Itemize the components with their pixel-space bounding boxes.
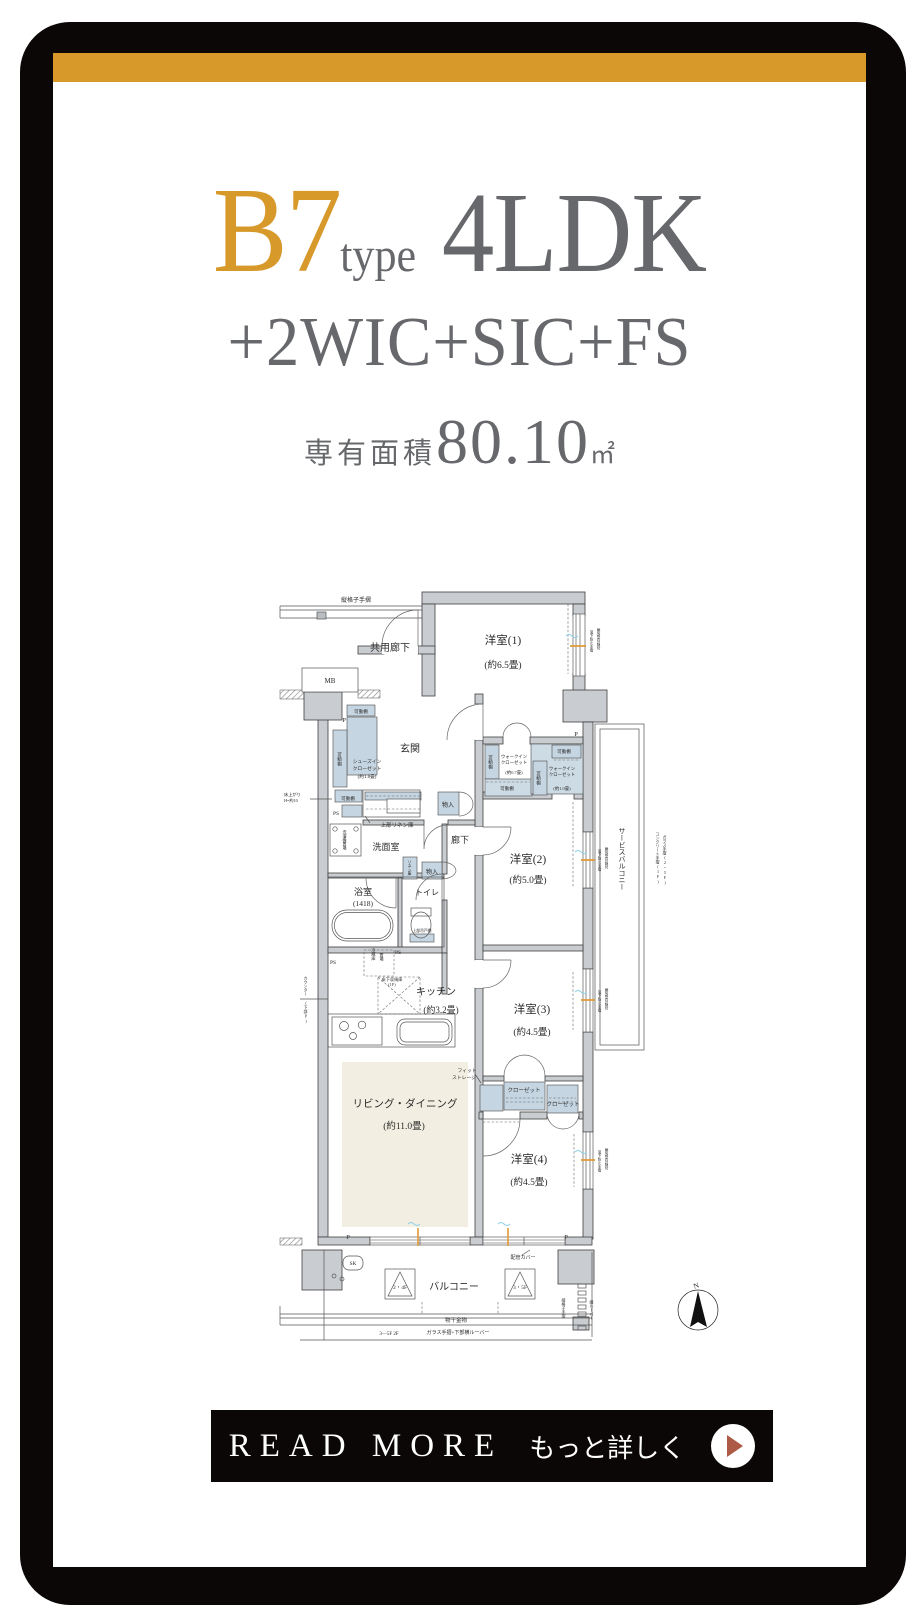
area-label: 専有面積 bbox=[304, 438, 436, 470]
label-genkan: 玄関 bbox=[400, 742, 420, 755]
plan-label: 配管カバー bbox=[510, 1254, 535, 1261]
label-kitchen-size: (約3.2畳) bbox=[423, 1004, 458, 1015]
compass-n-label: N bbox=[692, 1280, 700, 1290]
plan-area: 専有面積80.10㎡ bbox=[53, 405, 866, 479]
label-common-corridor: 共用廊下 bbox=[370, 641, 410, 654]
plan-label: コンクリート手摺(1F) bbox=[656, 832, 661, 884]
plan-label: 落下防止手摺 bbox=[597, 1149, 602, 1172]
label-kitchen: キッチン bbox=[416, 986, 456, 998]
plan-label: P bbox=[346, 1234, 350, 1241]
plan-label: クローゼット bbox=[353, 765, 382, 772]
plan-label: PS bbox=[330, 960, 336, 966]
plan-label: 開放型目隠付 bbox=[604, 1147, 609, 1170]
plan-label: P bbox=[574, 731, 578, 738]
living-floor-area bbox=[342, 1062, 468, 1227]
label-bath: 浴室 bbox=[354, 886, 372, 897]
plan-label: 落下防止手摺 bbox=[597, 989, 602, 1012]
plan-label: 可動棚 bbox=[354, 708, 368, 715]
right-arrow-icon bbox=[727, 1435, 743, 1457]
plan-label: クローゼット bbox=[507, 1086, 540, 1094]
plan-label: 上部吊戸棚 bbox=[413, 928, 432, 933]
floorplan-diagram: 縦格子手摺共用廊下MB洋室(1)(約6.5畳)玄関可動棚可動棚シューズインクロー… bbox=[270, 562, 750, 1352]
plan-label: 縦ルーバー bbox=[590, 1299, 595, 1320]
plan-code: B7 bbox=[213, 163, 340, 298]
plan-label: (下部P) bbox=[304, 1001, 309, 1024]
label-bedroom4-size: (約4.5畳) bbox=[510, 1176, 547, 1188]
label-balcony: バルコニー bbox=[429, 1281, 479, 1293]
read-more-detail-label: もっと詳しく bbox=[529, 1428, 685, 1465]
label-service-balcony: サービスバルコニー bbox=[618, 828, 626, 891]
plan-label: P bbox=[564, 1234, 568, 1241]
plan-label: 物干金物 bbox=[445, 1316, 468, 1324]
plan-label: ガラス手摺+下部横ルーバー bbox=[427, 1329, 490, 1336]
plan-label: SK bbox=[349, 1261, 356, 1267]
plan-options: +2WIC+SIC+FS bbox=[73, 303, 845, 383]
plan-label: 2・4F bbox=[393, 1285, 407, 1291]
plan-label: PS bbox=[333, 811, 339, 817]
label-living-size: (約11.0畳) bbox=[383, 1120, 425, 1132]
plan-label: ストレージ bbox=[452, 1075, 476, 1081]
plan-label: (約0.7畳) bbox=[505, 769, 523, 776]
plan-label: クローゼット bbox=[501, 759, 527, 766]
label-bedroom3-size: (約4.5畳) bbox=[513, 1026, 550, 1038]
plan-label: 可動棚 bbox=[500, 785, 514, 792]
plan-label: 落下防止手摺 bbox=[597, 848, 602, 871]
plan-label: 可動棚 bbox=[337, 752, 343, 767]
plan-label: ウォークイン bbox=[501, 753, 528, 760]
arrow-circle-icon[interactable] bbox=[711, 1424, 755, 1468]
plan-label: 開放型目隠付 bbox=[604, 987, 609, 1010]
plan-label: H=約10 bbox=[284, 797, 298, 804]
plan-label: カウンター bbox=[304, 976, 309, 996]
plan-label: 可動棚 bbox=[536, 771, 542, 786]
plan-label: 物入 bbox=[442, 801, 454, 809]
plan-label: 物入 bbox=[426, 868, 438, 876]
plan-label: 可動棚 bbox=[341, 795, 355, 802]
plan-label: (約1.0畳) bbox=[553, 785, 571, 792]
plan-label: フィット bbox=[457, 1068, 476, 1074]
plan-code-suffix: type bbox=[340, 229, 416, 282]
label-bedroom1-size: (約6.5畳) bbox=[484, 659, 521, 671]
read-more-button[interactable]: READ MORE もっと詳しく bbox=[211, 1410, 773, 1482]
area-unit: ㎡ bbox=[590, 442, 615, 469]
plan-label: P bbox=[342, 717, 346, 724]
area-value: 80.10 bbox=[436, 406, 590, 477]
plan-label: PS bbox=[395, 950, 401, 956]
plan-label: 床上がり bbox=[284, 791, 301, 798]
card-inner: B7type4LDK +2WIC+SIC+FS 専有面積80.10㎡ bbox=[53, 53, 866, 1567]
read-more-label: READ MORE bbox=[229, 1428, 503, 1465]
accent-bar bbox=[53, 53, 866, 82]
label-bedroom3: 洋室(3) bbox=[514, 1002, 551, 1016]
plan-label: (1F) bbox=[388, 982, 396, 987]
plan-label: シューズイン bbox=[353, 758, 382, 765]
plan-label: 洗濯機置場 bbox=[343, 829, 348, 851]
plan-label: (約1.8畳) bbox=[358, 773, 377, 780]
plan-label: 開放型目隠付 bbox=[604, 846, 609, 869]
label-bedroom2: 洋室(2) bbox=[510, 852, 547, 866]
label-railing-top: 縦格子手摺 bbox=[341, 596, 371, 604]
plan-label: 落下防止手摺 bbox=[589, 629, 594, 652]
label-bedroom4: 洋室(4) bbox=[511, 1152, 548, 1166]
plan-label: 上部リネン庫 bbox=[380, 821, 414, 829]
plan-label: 3—5F 2F bbox=[379, 1332, 399, 1337]
plan-label: ガラス手摺(2~5F) bbox=[663, 834, 668, 885]
page: B7type4LDK +2WIC+SIC+FS 専有面積80.10㎡ bbox=[0, 0, 918, 1620]
label-mb: MB bbox=[325, 677, 336, 685]
plan-label: 可動棚 bbox=[557, 748, 571, 755]
label-bedroom1: 洋室(1) bbox=[485, 633, 522, 647]
plan-label: ウォークイン bbox=[549, 765, 576, 772]
plan-label: (1418) bbox=[353, 899, 373, 908]
label-senmen: 洗面室 bbox=[372, 841, 399, 852]
plan-label: 置場 bbox=[379, 952, 385, 962]
plan-label: 冷蔵庫 bbox=[371, 946, 377, 961]
plan-layout: 4LDK bbox=[442, 169, 706, 296]
plan-label: 縦格子手摺 bbox=[562, 1297, 567, 1319]
label-toilet: トイレ bbox=[415, 888, 439, 897]
plan-label: 可動棚 bbox=[488, 755, 494, 770]
plan-label: 開放型目隠付 bbox=[596, 627, 601, 650]
label-bedroom2-size: (約5.0畳) bbox=[509, 874, 546, 886]
plan-label: クローゼット bbox=[549, 771, 575, 778]
plan-label: クローゼット bbox=[546, 1100, 579, 1108]
plan-title: B7type4LDK bbox=[86, 161, 834, 301]
plan-card: B7type4LDK +2WIC+SIC+FS 専有面積80.10㎡ bbox=[20, 22, 906, 1605]
label-hallway: 廊下 bbox=[451, 834, 469, 845]
label-living: リビング・ダイニング bbox=[353, 1097, 458, 1110]
plan-label: 3・5F bbox=[513, 1285, 527, 1291]
plan-label: リネン庫 bbox=[407, 860, 412, 876]
